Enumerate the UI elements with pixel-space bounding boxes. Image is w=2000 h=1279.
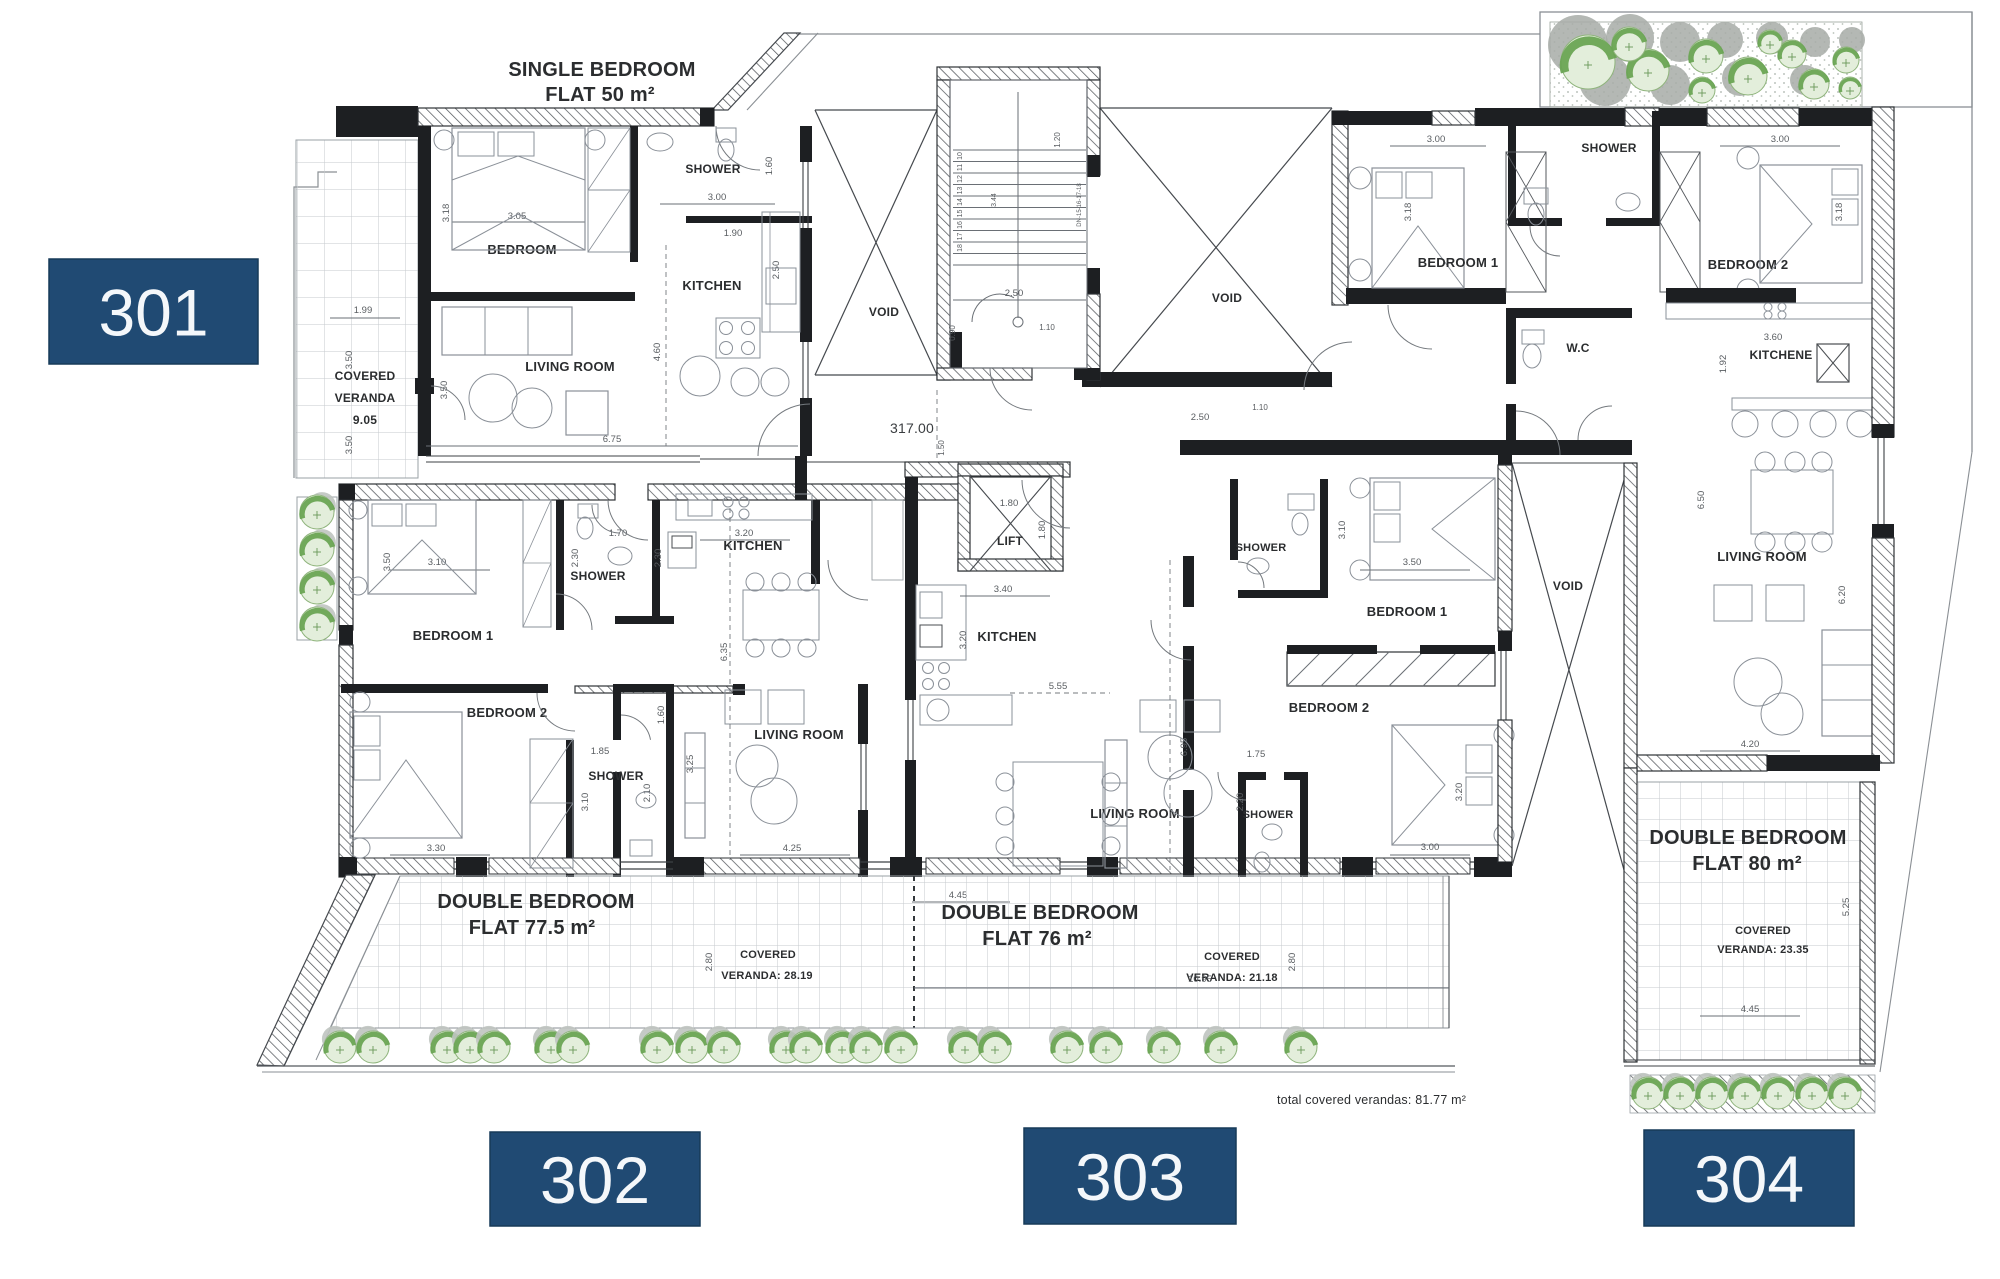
svg-text:3.20: 3.20 [735, 528, 754, 539]
svg-text:15: 15 [957, 210, 964, 218]
svg-text:DOUBLE BEDROOM: DOUBLE BEDROOM [1649, 827, 1846, 849]
svg-text:3.18: 3.18 [441, 204, 452, 223]
svg-text:6.50: 6.50 [1696, 491, 1707, 510]
svg-text:BEDROOM 2: BEDROOM 2 [467, 705, 548, 720]
svg-text:FLAT 50 m²: FLAT 50 m² [545, 84, 655, 106]
svg-text:1.80: 1.80 [1000, 498, 1019, 509]
svg-text:COVERED: COVERED [740, 949, 796, 961]
svg-text:9.05: 9.05 [353, 413, 377, 427]
svg-text:3.10: 3.10 [428, 557, 447, 568]
svg-text:FLAT 80 m²: FLAT 80 m² [1692, 853, 1802, 875]
svg-text:5.55: 5.55 [1049, 681, 1068, 692]
svg-text:1.20: 1.20 [1053, 132, 1062, 148]
svg-text:3.18: 3.18 [1403, 203, 1414, 222]
svg-text:3.50: 3.50 [344, 351, 355, 370]
svg-text:5.25: 5.25 [1841, 898, 1852, 917]
svg-text:2.80: 2.80 [704, 953, 715, 972]
svg-text:VOID: VOID [1212, 291, 1242, 305]
svg-text:3.44: 3.44 [991, 193, 998, 207]
svg-text:6.20: 6.20 [1837, 586, 1848, 605]
svg-text:SHOWER: SHOWER [1243, 809, 1294, 821]
svg-text:3.00: 3.00 [1771, 134, 1790, 145]
svg-text:4.25: 4.25 [783, 843, 802, 854]
svg-text:SHOWER: SHOWER [588, 769, 643, 783]
svg-text:3.50: 3.50 [1403, 557, 1422, 568]
svg-text:COVERED: COVERED [1204, 951, 1260, 963]
svg-text:SINGLE BEDROOM: SINGLE BEDROOM [508, 59, 695, 81]
svg-text:3.30: 3.30 [427, 843, 446, 854]
svg-text:16: 16 [957, 221, 964, 229]
svg-text:KITCHENE: KITCHENE [1750, 348, 1813, 362]
svg-text:VERANDA: 23.35: VERANDA: 23.35 [1717, 944, 1808, 956]
svg-text:3.00: 3.00 [708, 192, 727, 203]
svg-text:317.00: 317.00 [890, 420, 934, 436]
svg-text:3.18: 3.18 [1834, 203, 1845, 222]
svg-text:12: 12 [957, 175, 964, 183]
svg-text:total covered verandas: 81.77: total covered verandas: 81.77 m² [1277, 1093, 1466, 1107]
svg-text:14: 14 [957, 198, 964, 206]
svg-text:KITCHEN: KITCHEN [682, 278, 741, 293]
svg-text:1.50: 1.50 [937, 440, 946, 456]
svg-text:COVERED: COVERED [1735, 925, 1791, 937]
svg-text:2.20: 2.20 [1235, 793, 1246, 812]
svg-text:1.60: 1.60 [656, 706, 667, 725]
svg-text:2.50: 2.50 [771, 261, 782, 280]
svg-text:COVERED: COVERED [335, 369, 396, 383]
svg-text:6.75: 6.75 [603, 434, 622, 445]
svg-text:W.C: W.C [1566, 341, 1589, 355]
svg-text:DOUBLE BEDROOM: DOUBLE BEDROOM [941, 902, 1138, 924]
svg-text:VOID: VOID [1553, 579, 1583, 593]
svg-text:2.50: 2.50 [1191, 412, 1210, 423]
svg-text:KITCHEN: KITCHEN [977, 629, 1036, 644]
svg-text:3.10: 3.10 [1337, 521, 1348, 540]
svg-text:2.30: 2.30 [653, 549, 664, 568]
svg-text:3.20: 3.20 [958, 631, 969, 650]
svg-text:1.60: 1.60 [764, 157, 775, 176]
svg-text:LIVING ROOM: LIVING ROOM [1090, 806, 1180, 821]
svg-text:VOID: VOID [869, 305, 899, 319]
svg-text:2.50: 2.50 [1005, 288, 1024, 299]
svg-text:BEDROOM 1: BEDROOM 1 [1418, 255, 1499, 270]
svg-text:4.20: 4.20 [1741, 739, 1760, 750]
svg-text:FLAT 76 m²: FLAT 76 m² [982, 928, 1092, 950]
svg-text:17: 17 [957, 233, 964, 241]
svg-text:1.75: 1.75 [1247, 749, 1266, 760]
svg-text:4.45: 4.45 [1741, 1004, 1760, 1015]
svg-text:BEDROOM 2: BEDROOM 2 [1289, 700, 1370, 715]
svg-text:13: 13 [957, 187, 964, 195]
svg-text:2.80: 2.80 [1287, 953, 1298, 972]
svg-text:1.10: 1.10 [1039, 323, 1055, 332]
svg-text:LIVING ROOM: LIVING ROOM [525, 359, 615, 374]
svg-text:1.99: 1.99 [354, 305, 373, 316]
svg-text:BEDROOM 1: BEDROOM 1 [413, 628, 494, 643]
svg-text:SHOWER: SHOWER [570, 569, 625, 583]
svg-text:3.00: 3.00 [1421, 842, 1440, 853]
svg-text:302: 302 [540, 1143, 650, 1217]
svg-text:304: 304 [1694, 1142, 1804, 1216]
svg-text:1.10: 1.10 [1252, 403, 1268, 412]
svg-text:VERANDA: VERANDA [335, 391, 396, 405]
svg-text:1.85: 1.85 [591, 746, 610, 757]
svg-text:LIFT: LIFT [997, 534, 1024, 548]
svg-text:3.10: 3.10 [580, 793, 591, 812]
svg-text:303: 303 [1075, 1140, 1185, 1214]
svg-text:3.50: 3.50 [382, 553, 393, 572]
svg-text:18: 18 [957, 244, 964, 252]
svg-text:SHOWER: SHOWER [1236, 542, 1287, 554]
svg-text:1.70: 1.70 [609, 528, 628, 539]
svg-text:FLAT 77.5 m²: FLAT 77.5 m² [469, 917, 596, 939]
svg-text:3.60: 3.60 [1764, 332, 1783, 343]
svg-text:LIVING ROOM: LIVING ROOM [754, 727, 844, 742]
svg-text:4.60: 4.60 [652, 343, 663, 362]
svg-text:3.25: 3.25 [685, 755, 696, 774]
svg-text:1.80: 1.80 [1037, 521, 1048, 540]
svg-text:0.90: 0.90 [948, 325, 957, 341]
svg-text:1.90: 1.90 [724, 228, 743, 239]
svg-text:10.95: 10.95 [1188, 974, 1212, 985]
svg-text:6.35: 6.35 [719, 643, 730, 662]
svg-text:2.30: 2.30 [570, 549, 581, 568]
svg-text:3.50: 3.50 [439, 381, 450, 400]
svg-text:VERANDA: 28.19: VERANDA: 28.19 [721, 970, 812, 982]
svg-text:DOUBLE BEDROOM: DOUBLE BEDROOM [437, 891, 634, 913]
svg-text:3.50: 3.50 [344, 436, 355, 455]
svg-text:1.92: 1.92 [1718, 355, 1729, 374]
svg-text:301: 301 [98, 276, 208, 350]
svg-text:3.20: 3.20 [1454, 783, 1465, 802]
svg-text:SHOWER: SHOWER [1581, 141, 1636, 155]
svg-text:LIVING ROOM: LIVING ROOM [1717, 549, 1807, 564]
svg-text:10: 10 [957, 152, 964, 160]
svg-text:SHOWER: SHOWER [685, 162, 740, 176]
svg-text:BEDROOM 1: BEDROOM 1 [1367, 604, 1448, 619]
svg-text:DN-15-16-17-18: DN-15-16-17-18 [1077, 183, 1083, 227]
svg-text:3.40: 3.40 [994, 584, 1013, 595]
svg-text:11: 11 [957, 164, 964, 171]
svg-text:3.00: 3.00 [1427, 134, 1446, 145]
